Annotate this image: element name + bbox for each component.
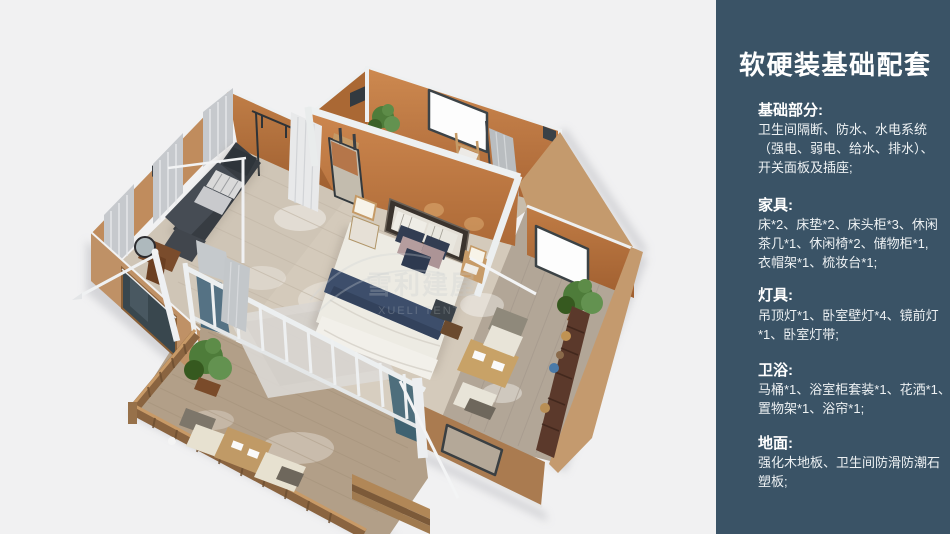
svg-text:XUELI TENT: XUELI TENT [378, 305, 461, 317]
svg-text:雪利建屋: 雪利建屋 [366, 270, 478, 300]
